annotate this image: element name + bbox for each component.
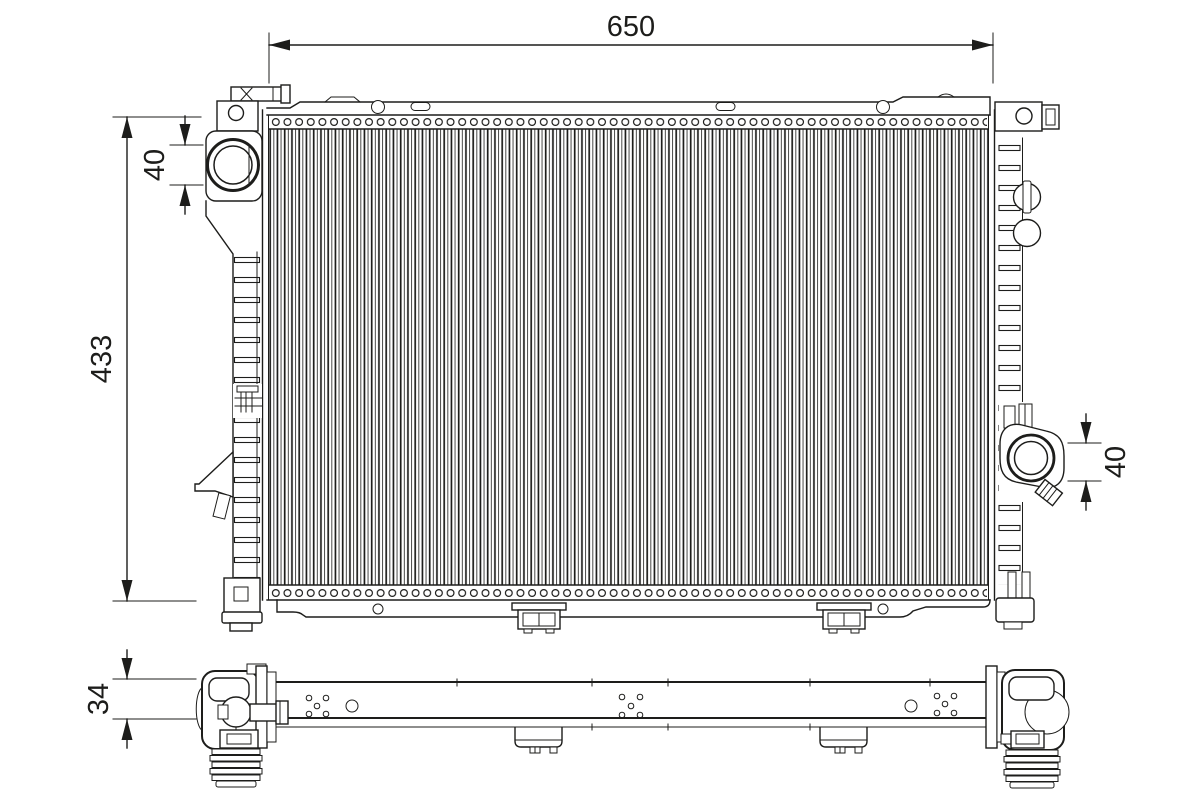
radiator-technical-drawing: 650 433 40 40 <box>0 0 1200 800</box>
hose-barb-left <box>210 749 262 787</box>
right-mounting-bracket <box>995 102 1059 131</box>
dim-overall-height-label: 433 <box>86 335 118 383</box>
cap-slot <box>209 678 249 701</box>
right-end-cap <box>986 666 1069 788</box>
dim-inlet-port: 40 <box>139 116 203 214</box>
bottom-bracket-left <box>515 728 562 753</box>
hose-barb-right <box>1004 750 1060 788</box>
bottom-mounting-bracket-right <box>817 603 871 633</box>
dim-depth: 34 <box>83 650 196 748</box>
right-tank <box>995 102 1065 629</box>
left-support-bracket <box>195 452 233 519</box>
dim-overall-width-label: 650 <box>607 11 655 43</box>
secondary-port <box>1014 220 1041 247</box>
dim-inlet-port-label: 40 <box>139 149 171 181</box>
left-end-cap <box>196 664 288 787</box>
bottom-mounting-bracket-left <box>512 603 566 633</box>
core-fins <box>269 129 988 585</box>
bottom-bracket-right <box>820 728 867 753</box>
radiator-bottom-view <box>196 664 1069 788</box>
left-tank-clip <box>233 384 262 418</box>
dim-overall-width: 650 <box>269 11 993 83</box>
left-mounting-bracket <box>217 101 258 131</box>
radiator-front-view <box>195 85 1065 633</box>
dim-overall-height: 433 <box>86 117 201 601</box>
dim-outlet-port: 40 <box>1068 414 1132 510</box>
bottom-header-plate <box>267 586 990 600</box>
dim-depth-label: 34 <box>83 683 115 715</box>
drawing-canvas: 650 433 40 40 <box>0 0 1200 800</box>
inlet-port <box>206 131 262 201</box>
top-tank-plate <box>267 94 990 115</box>
dim-outlet-port-label: 40 <box>1100 446 1132 478</box>
top-header-plate <box>267 115 990 129</box>
bottom-tank-plate <box>277 600 990 617</box>
cap-slot-right <box>1009 677 1054 700</box>
drain-plug <box>222 578 262 631</box>
